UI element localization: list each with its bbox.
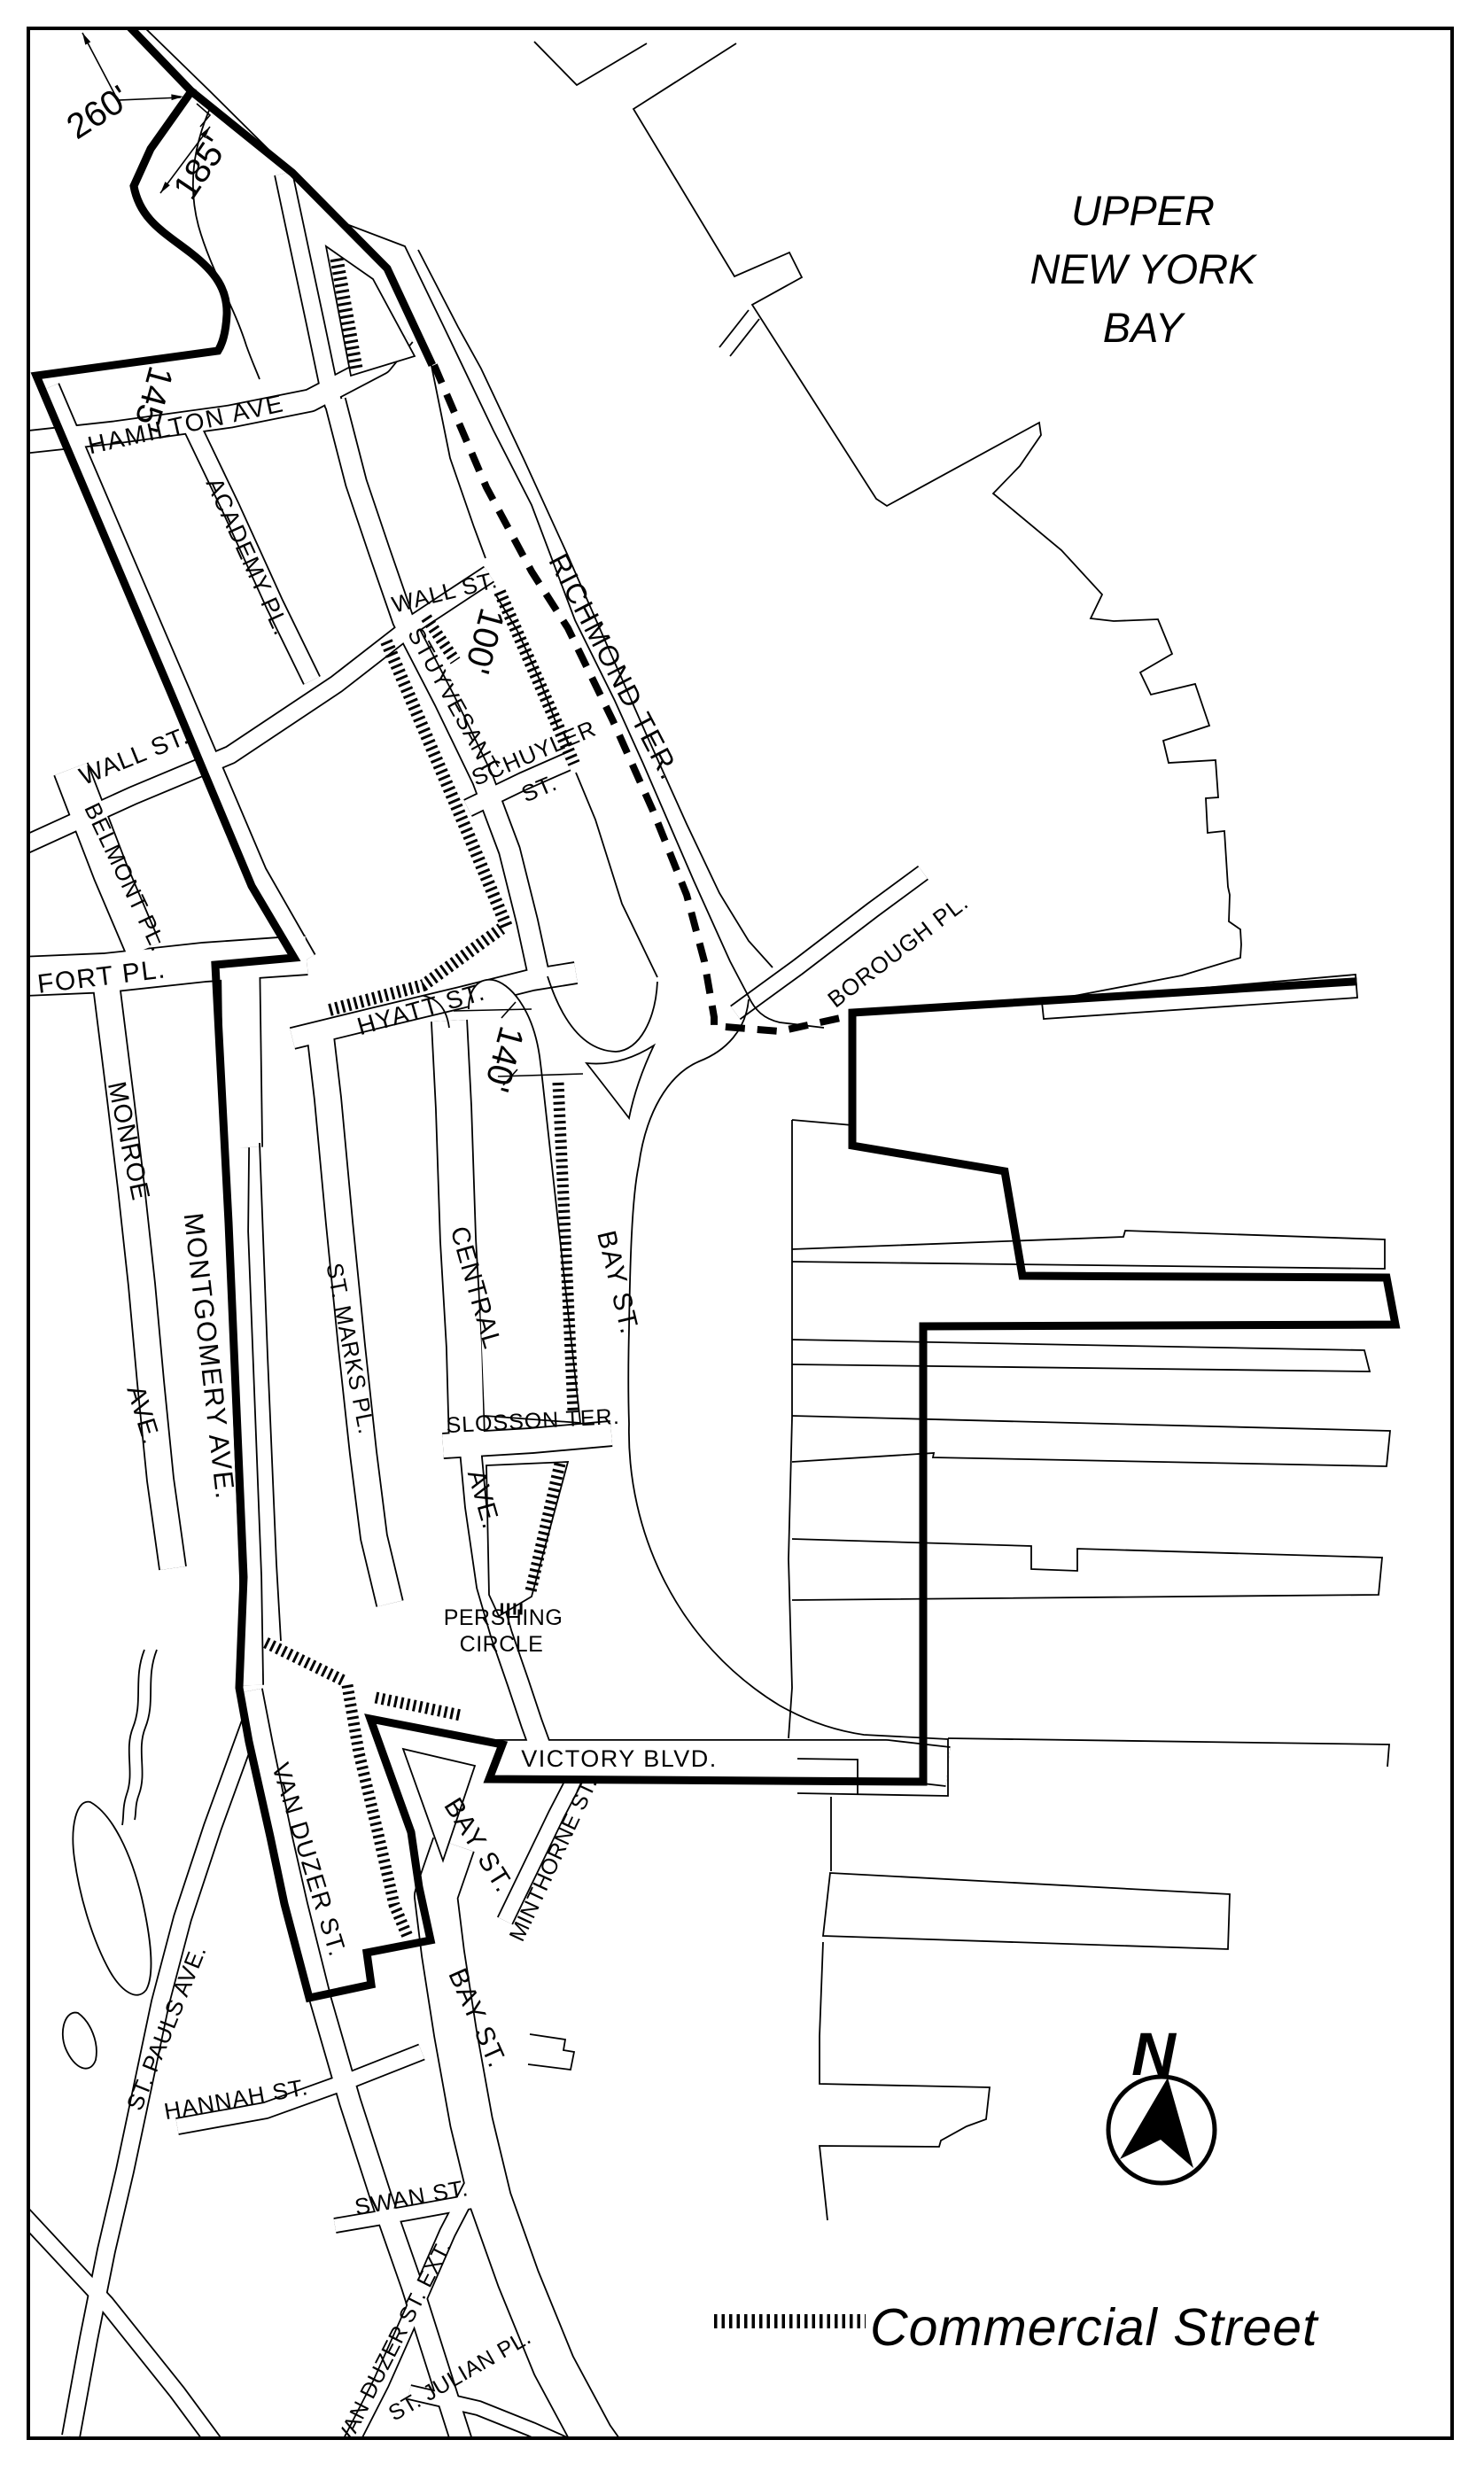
svg-text:BAY: BAY bbox=[1103, 304, 1186, 351]
svg-text:N: N bbox=[1131, 2020, 1177, 2088]
svg-text:PERSHING: PERSHING bbox=[444, 1605, 563, 1630]
svg-text:UPPER: UPPER bbox=[1071, 187, 1215, 234]
svg-text:VICTORY BLVD.: VICTORY BLVD. bbox=[521, 1745, 718, 1772]
svg-text:NEW YORK: NEW YORK bbox=[1029, 245, 1258, 292]
svg-text:Commercial Street: Commercial Street bbox=[870, 2298, 1319, 2357]
svg-text:CIRCLE: CIRCLE bbox=[460, 1632, 544, 1657]
